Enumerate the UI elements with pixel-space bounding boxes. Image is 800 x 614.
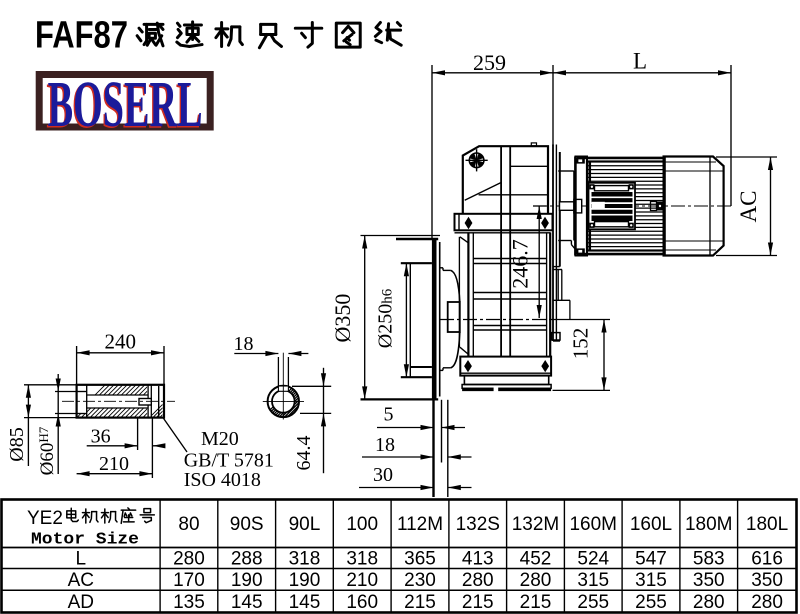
svg-text:280: 280 [173,549,205,570]
svg-text:315: 315 [635,570,667,591]
svg-text:616: 616 [751,549,783,570]
svg-text:AD: AD [68,592,94,613]
svg-text:132M: 132M [512,514,560,535]
svg-text:132S: 132S [456,514,500,535]
svg-text:90L: 90L [289,514,321,535]
svg-text:160L: 160L [630,514,672,535]
svg-text:318: 318 [289,549,321,570]
svg-text:170: 170 [173,570,205,591]
svg-text:36: 36 [91,426,111,448]
svg-text:315: 315 [577,570,609,591]
svg-text:583: 583 [693,549,725,570]
svg-text:280: 280 [520,570,552,591]
svg-text:547: 547 [635,549,667,570]
svg-text:452: 452 [520,549,552,570]
svg-text:288: 288 [231,549,263,570]
svg-text:160M: 160M [569,514,617,535]
svg-text:318: 318 [346,549,378,570]
svg-text:M20: M20 [201,428,239,450]
svg-text:160: 160 [346,592,378,613]
svg-text:350: 350 [751,570,783,591]
svg-text:Ø85: Ø85 [6,427,28,461]
svg-text:135: 135 [173,592,205,613]
svg-text:280: 280 [693,592,725,613]
svg-text:413: 413 [462,549,494,570]
svg-text:180L: 180L [746,514,788,535]
svg-text:Motor Size: Motor Size [31,531,139,550]
svg-text:524: 524 [577,549,609,570]
svg-text:280: 280 [462,570,494,591]
svg-text:AC: AC [68,570,94,591]
svg-text:145: 145 [231,592,263,613]
svg-text:215: 215 [462,592,494,613]
svg-text:90S: 90S [230,514,264,535]
svg-text:240: 240 [105,330,137,354]
svg-text:5: 5 [384,404,394,426]
svg-text:152: 152 [569,328,593,360]
svg-text:64.4: 64.4 [293,436,315,471]
svg-text:L: L [633,49,647,74]
svg-text:350: 350 [693,570,725,591]
svg-text:190: 190 [231,570,263,591]
svg-text:255: 255 [635,592,667,613]
svg-text:FAF87: FAF87 [35,15,128,57]
svg-text:18: 18 [375,434,395,456]
svg-text:Ø350: Ø350 [330,294,355,343]
svg-text:100: 100 [346,514,378,535]
svg-text:210: 210 [99,453,129,475]
svg-text:L: L [76,549,87,570]
svg-text:365: 365 [404,549,436,570]
svg-text:180M: 180M [685,514,733,535]
svg-text:210: 210 [346,570,378,591]
svg-text:215: 215 [404,592,436,613]
svg-text:280: 280 [751,592,783,613]
svg-text:ISO 4018: ISO 4018 [184,469,261,491]
svg-text:145: 145 [289,592,321,613]
svg-text:18: 18 [234,333,254,355]
svg-text:BOSERL: BOSERL [48,68,203,141]
svg-text:112M: 112M [397,514,443,535]
svg-text:190: 190 [289,570,321,591]
svg-text:AC: AC [736,191,761,223]
svg-text:255: 255 [577,592,609,613]
svg-text:YE2: YE2 [27,508,63,529]
svg-text:30: 30 [373,464,393,486]
svg-text:215: 215 [520,592,552,613]
svg-text:80: 80 [178,514,199,535]
svg-text:259: 259 [473,50,506,75]
svg-text:230: 230 [404,570,436,591]
